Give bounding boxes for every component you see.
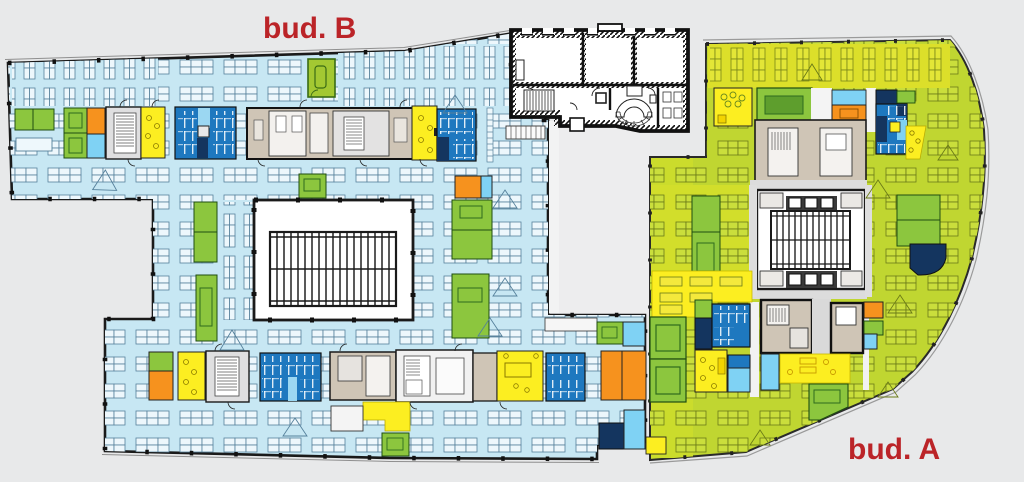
svg-text:bud. B: bud. B <box>263 12 356 45</box>
svg-text:bud. A: bud. A <box>848 433 940 466</box>
